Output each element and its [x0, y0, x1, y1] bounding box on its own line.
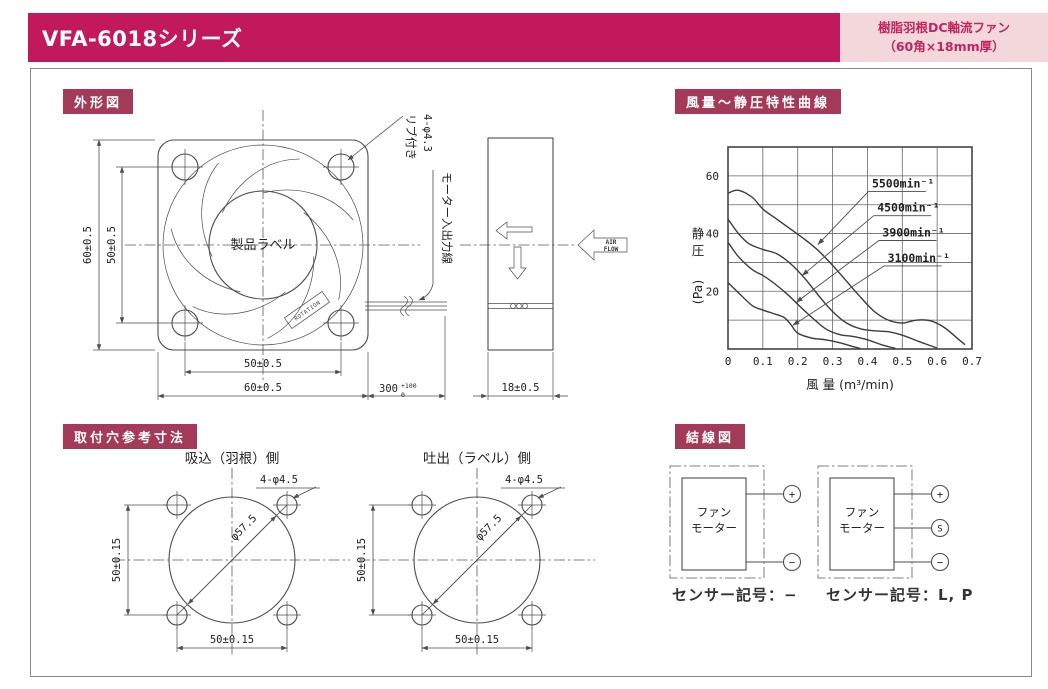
svg-text:60±0.5: 60±0.5: [244, 382, 282, 394]
svg-text:−: −: [789, 557, 795, 569]
lead-wire-label: モーター入出力線: [440, 172, 454, 264]
y-axis-unit: (Pa): [690, 280, 705, 304]
dim-wire-length: 300 +100 0: [368, 316, 445, 400]
sensor-code-left: センサー記号：−: [672, 584, 798, 605]
x-tick-label: 0.2: [788, 355, 808, 368]
diameter-label: φ57.5: [228, 512, 259, 543]
svg-text:50±0.5: 50±0.5: [106, 226, 118, 264]
plot-frame: [728, 147, 972, 349]
x-tick-label: 0: [725, 355, 732, 368]
fan-motor-line1: ファン: [697, 505, 732, 519]
svg-text:60±0.5: 60±0.5: [82, 226, 94, 264]
fan-motor-line2: モーター: [691, 521, 737, 535]
dim-height-outer: 60±0.5: [82, 140, 155, 350]
curve-label-5500: 5500min⁻¹: [872, 176, 934, 190]
svg-text:50±0.15: 50±0.15: [356, 538, 368, 582]
hole-callout: 4-φ4.5: [256, 474, 320, 498]
sensor-code-right: センサー記号：L, P: [826, 584, 973, 605]
svg-text:S: S: [937, 525, 942, 535]
label-leader-3900: [796, 240, 879, 302]
product-type-line1: 樹脂羽根DC軸流ファン: [840, 19, 1048, 38]
dim-thickness: 18±0.5: [502, 382, 540, 394]
series-title-bar: VFA-6018シリーズ: [28, 13, 840, 62]
y-tick-label: 60: [706, 170, 719, 183]
rib-callout-line1: リブ付き: [404, 114, 418, 160]
svg-text:+: +: [937, 489, 943, 501]
air-flow-marker: AIR FLOW: [578, 230, 627, 260]
hole-callout: 4-φ4.5: [501, 474, 565, 498]
wiring-diagram-right: ファン モーター + S −: [810, 458, 995, 588]
section-badge-curve: 風量～静圧特性曲線: [675, 89, 841, 114]
label-leader-5500: [818, 191, 869, 244]
datasheet-page: VFA-6018シリーズ 樹脂羽根DC軸流ファン （60角×18mm厚） 外形図…: [0, 0, 1048, 689]
header-bar: VFA-6018シリーズ 樹脂羽根DC軸流ファン （60角×18mm厚）: [28, 13, 1048, 62]
svg-text:50±0.15: 50±0.15: [111, 538, 123, 582]
x-tick-label: 0.1: [753, 355, 773, 368]
mounting-right-drawing: φ57.5 4-φ4.5 50±0.15 50±0.15: [327, 443, 627, 658]
svg-text:50±0.15: 50±0.15: [455, 634, 499, 646]
x-tick-label: 0.6: [927, 355, 947, 368]
curve-label-3100: 3100min⁻¹: [888, 251, 950, 265]
x-tick-label: 0.5: [892, 355, 912, 368]
product-type-tag: 樹脂羽根DC軸流ファン （60角×18mm厚）: [840, 13, 1048, 62]
y-axis-label-char: 圧: [692, 243, 705, 258]
svg-text:4-φ4.5: 4-φ4.5: [260, 474, 298, 486]
pq-characteristic-chart: 00.10.20.30.40.50.60.72040605500min⁻¹450…: [674, 131, 1014, 401]
airflow-line2: FLOW: [604, 246, 619, 253]
x-tick-label: 0.4: [857, 355, 877, 368]
y-tick-label: 40: [706, 228, 719, 241]
svg-text:−: −: [937, 557, 943, 569]
svg-text:0: 0: [401, 391, 405, 399]
rib-callout: リブ付き 4-φ4.3: [348, 114, 433, 160]
lead-wire-callout: モーター入出力線: [419, 170, 454, 300]
fan-motor-line1: ファン: [845, 505, 880, 519]
fan-motor-line2: モーター: [839, 521, 885, 535]
page-title: VFA-6018シリーズ: [28, 23, 243, 53]
x-axis-label: 風 量 (m³/min): [806, 377, 894, 392]
svg-text:+100: +100: [401, 382, 417, 390]
y-axis-label-char: 静: [692, 226, 705, 241]
svg-text:+: +: [789, 489, 795, 501]
curve-3100: [728, 283, 860, 349]
curve-3900: [728, 242, 895, 348]
rotation-arrow-lower: [509, 247, 526, 279]
lead-wires: [365, 296, 447, 316]
product-label-text: 製品ラベル: [230, 238, 295, 253]
product-type-line2: （60角×18mm厚）: [840, 38, 1048, 57]
svg-text:300: 300: [379, 383, 398, 395]
diameter-label: φ57.5: [473, 512, 504, 543]
x-tick-label: 0.7: [962, 355, 982, 368]
curve-label-4500: 4500min⁻¹: [877, 201, 939, 215]
section-badge-wiring: 結線図: [675, 424, 745, 449]
rotation-arrow-upper: [496, 222, 532, 239]
rotation-tag: ROTATION: [284, 291, 329, 328]
svg-text:50±0.5: 50±0.5: [244, 358, 282, 370]
outline-drawing: 製品ラベル ROTATION リブ付き 4-φ4.3 モーター入出力線: [55, 108, 655, 408]
rib-callout-line2: 4-φ4.3: [421, 114, 433, 152]
side-view: 18±0.5: [460, 138, 575, 400]
svg-text:50±0.15: 50±0.15: [210, 634, 254, 646]
airflow-line1: AIR: [606, 239, 617, 246]
curve-label-3900: 3900min⁻¹: [882, 225, 944, 239]
x-tick-label: 0.3: [823, 355, 843, 368]
y-tick-label: 20: [706, 285, 719, 298]
svg-text:4-φ4.5: 4-φ4.5: [505, 474, 543, 486]
